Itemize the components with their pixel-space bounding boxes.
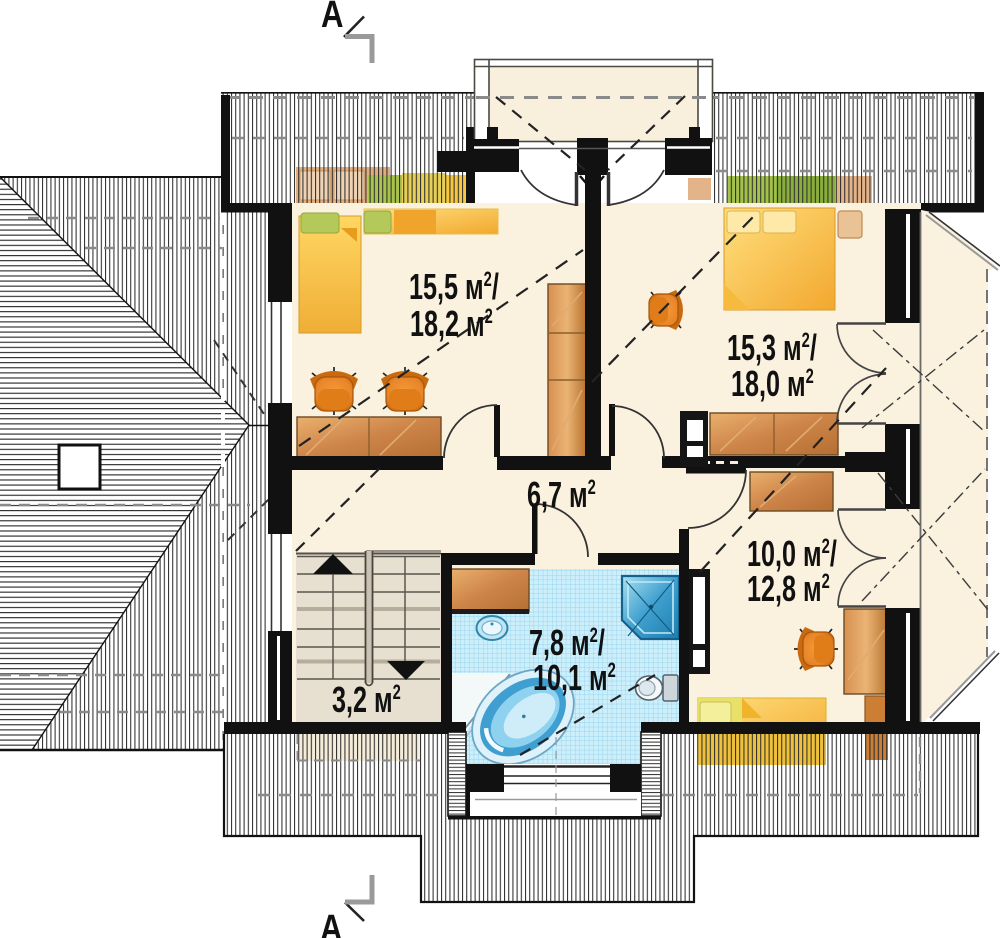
svg-text:6,7 м2: 6,7 м2 <box>527 475 596 516</box>
svg-text:12,8 м2: 12,8 м2 <box>747 569 830 610</box>
svg-text:A: A <box>321 0 344 36</box>
svg-text:18,2 м2: 18,2 м2 <box>410 304 493 345</box>
svg-text:A: A <box>320 908 343 938</box>
svg-text:18,0 м2: 18,0 м2 <box>731 364 814 405</box>
svg-text:10,1 м2: 10,1 м2 <box>533 658 616 699</box>
svg-text:3,2 м2: 3,2 м2 <box>332 680 401 721</box>
